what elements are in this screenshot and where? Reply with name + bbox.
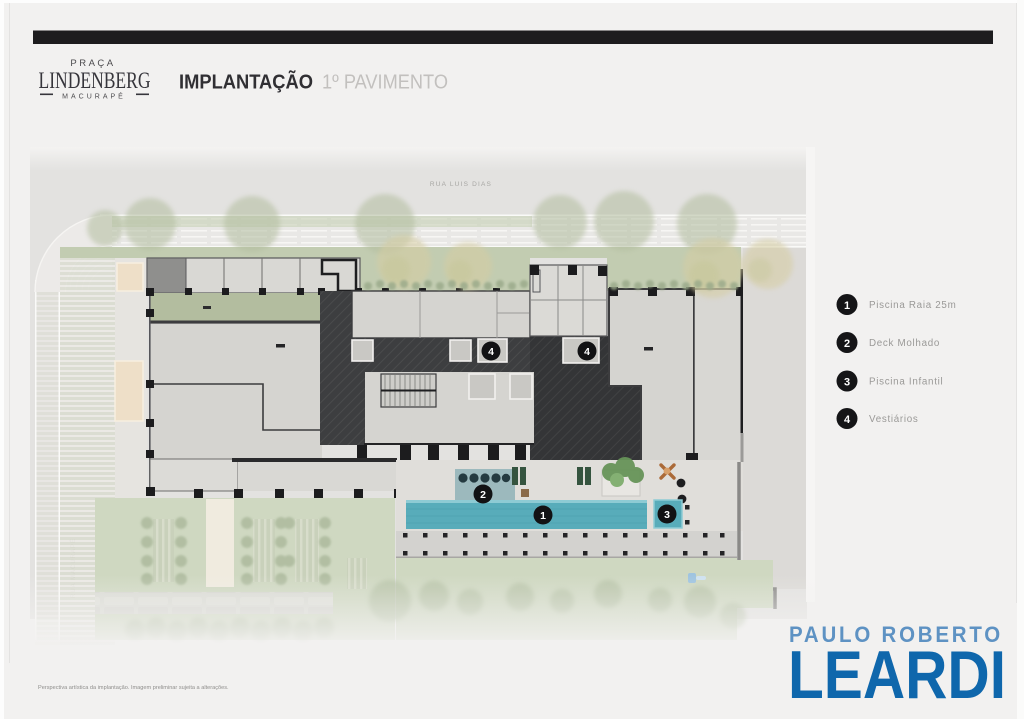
svg-text:1º PAVIMENTO: 1º PAVIMENTO — [322, 72, 448, 94]
svg-text:Deck Molhado: Deck Molhado — [869, 338, 940, 349]
svg-text:1: 1 — [844, 300, 850, 312]
svg-text:Piscina Infantil: Piscina Infantil — [869, 377, 943, 388]
svg-text:Perspectiva artística da impla: Perspectiva artística da implantação. Im… — [38, 685, 229, 691]
svg-text:IMPLANTAÇÃO: IMPLANTAÇÃO — [179, 71, 313, 94]
svg-text:4: 4 — [584, 346, 590, 358]
svg-text:LEARDI: LEARDI — [788, 637, 1006, 713]
svg-text:MACURAPÉ: MACURAPÉ — [62, 92, 126, 101]
svg-text:2: 2 — [480, 489, 486, 501]
svg-text:4: 4 — [488, 346, 494, 358]
svg-text:Vestiários: Vestiários — [869, 414, 918, 425]
svg-text:RUA LUIS DIAS: RUA LUIS DIAS — [430, 181, 492, 188]
svg-text:1: 1 — [540, 510, 546, 522]
svg-text:LINDENBERG: LINDENBERG — [39, 68, 151, 93]
svg-text:3: 3 — [844, 377, 850, 389]
svg-text:2: 2 — [844, 338, 850, 350]
svg-text:3: 3 — [664, 509, 670, 521]
svg-text:Piscina Raia 25m: Piscina Raia 25m — [869, 300, 956, 311]
svg-text:4: 4 — [844, 414, 851, 426]
